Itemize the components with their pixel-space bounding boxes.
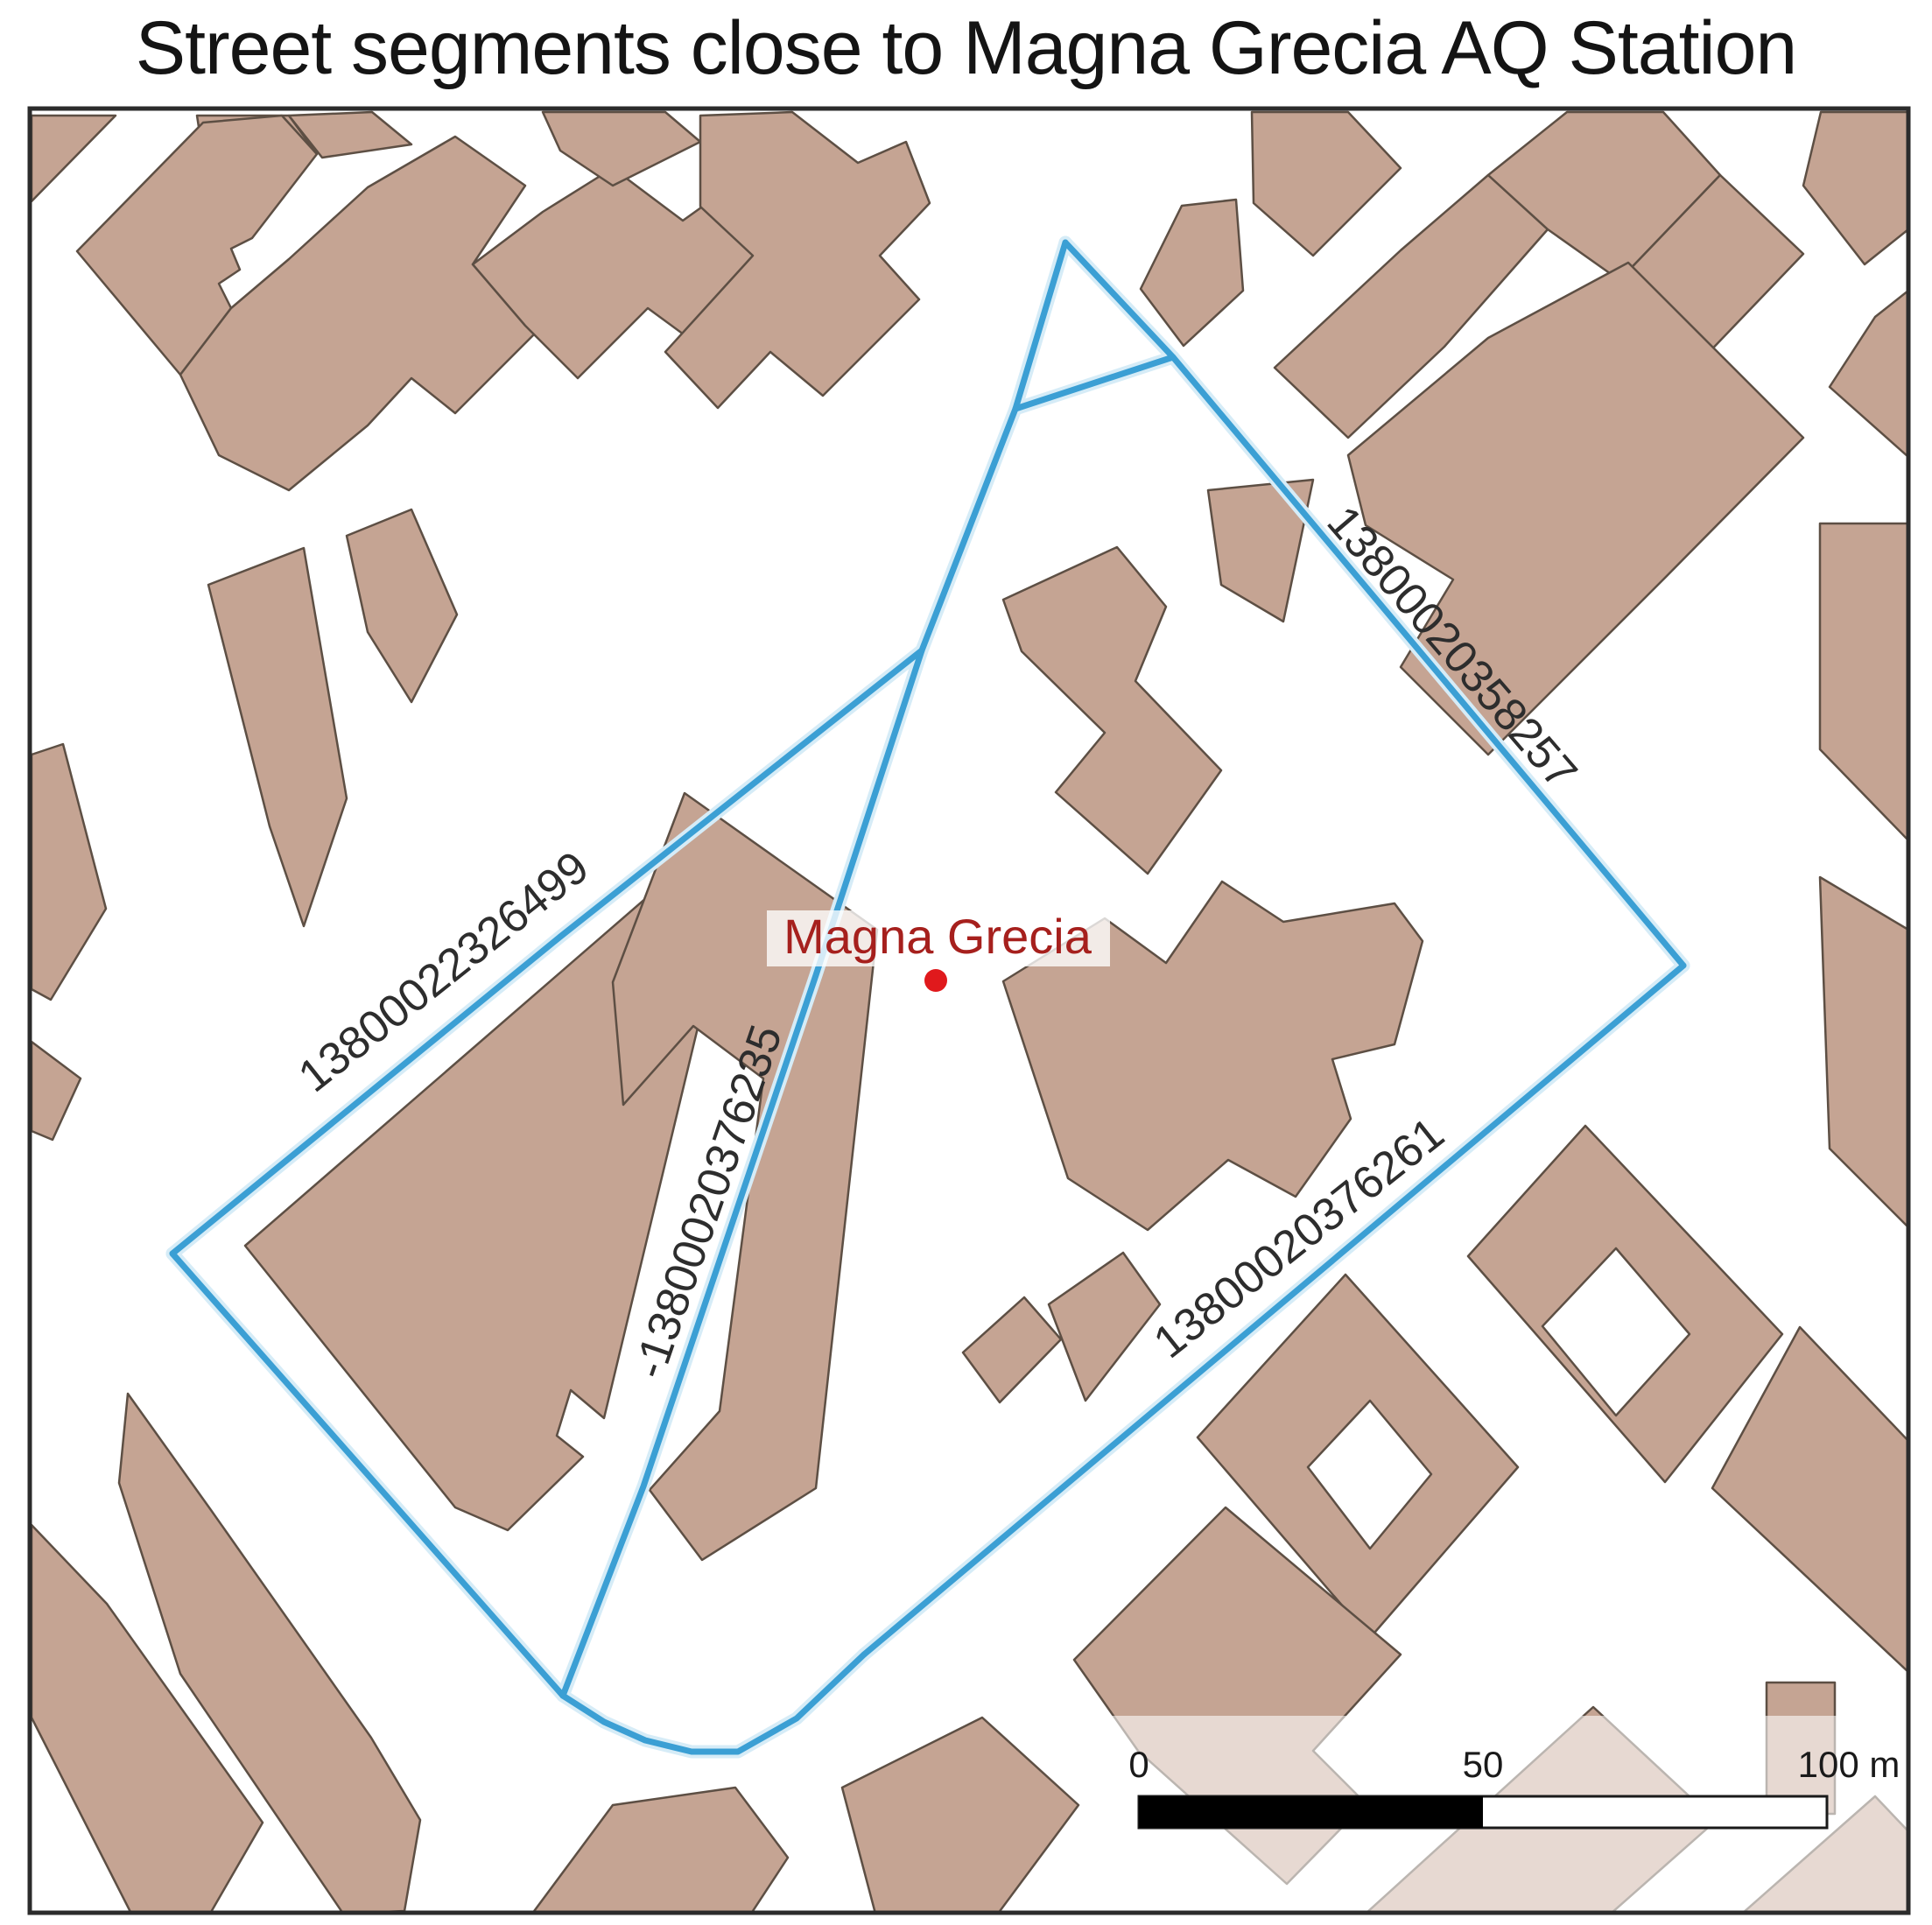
scalebar-tick-label: 50 — [1463, 1744, 1504, 1785]
scalebar-filled-half — [1139, 1796, 1483, 1828]
figure-title: Street segments close to Magna Grecia AQ… — [0, 5, 1932, 92]
map-figure: 1380002035825713800022326499-13800020376… — [0, 0, 1932, 1925]
station-marker-dot — [924, 969, 947, 992]
station-label: Magna Grecia — [783, 909, 1092, 964]
map-canvas: 1380002035825713800022326499-13800020376… — [0, 0, 1932, 1925]
scalebar-tick-label: 0 — [1128, 1744, 1149, 1785]
scalebar-tick-label: 100 m — [1798, 1744, 1900, 1785]
